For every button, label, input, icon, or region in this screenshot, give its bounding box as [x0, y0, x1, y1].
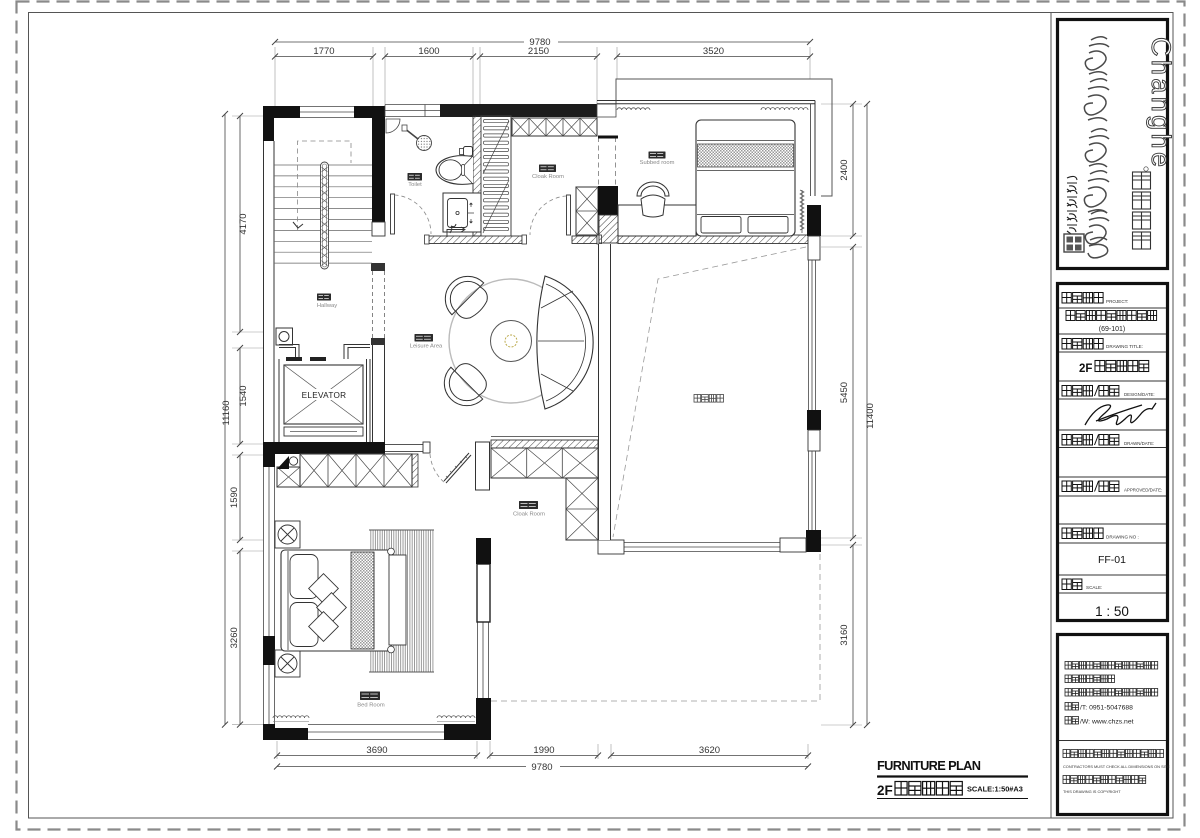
- svg-text:/W: www.chzs.net: /W: www.chzs.net: [1080, 719, 1134, 726]
- svg-text:1990: 1990: [533, 745, 554, 756]
- svg-text:1600: 1600: [418, 46, 439, 57]
- svg-text:SCALE:1:50#A3: SCALE:1:50#A3: [967, 785, 1023, 794]
- svg-text:2400: 2400: [839, 159, 850, 180]
- svg-text:DRAWING TITLE:: DRAWING TITLE:: [1106, 344, 1143, 349]
- svg-text:(69-101): (69-101): [1099, 326, 1125, 333]
- svg-text:DRAWING NO :: DRAWING NO :: [1106, 535, 1139, 540]
- svg-text:DESIGN/DATE:: DESIGN/DATE:: [1124, 392, 1155, 397]
- svg-text:PROJECT:: PROJECT:: [1106, 299, 1128, 304]
- svg-text:FF-01: FF-01: [1098, 554, 1126, 566]
- svg-text:2F: 2F: [877, 783, 893, 798]
- svg-text:3690: 3690: [366, 745, 387, 756]
- svg-text:Cloak Room: Cloak Room: [532, 174, 564, 180]
- svg-text:Bed Room: Bed Room: [357, 703, 385, 709]
- svg-text:1 : 50: 1 : 50: [1095, 604, 1129, 619]
- svg-text:Cloak Room: Cloak Room: [513, 512, 545, 518]
- svg-text:APPROVED/DATE:: APPROVED/DATE:: [1124, 488, 1162, 493]
- svg-text:3160: 3160: [839, 624, 850, 645]
- svg-text:CONTRACTORS MUST CHECK ALL DIM: CONTRACTORS MUST CHECK ALL DIMENSIONS ON…: [1063, 764, 1170, 769]
- svg-text:2F: 2F: [1079, 363, 1092, 375]
- svg-text:THIS DRAWING IS COPYRIGHT: THIS DRAWING IS COPYRIGHT: [1063, 789, 1121, 794]
- svg-text:1590: 1590: [229, 487, 240, 508]
- svg-text:5450: 5450: [839, 382, 850, 403]
- svg-text:11160: 11160: [221, 400, 232, 425]
- svg-text:/T: 0951-5047688: /T: 0951-5047688: [1080, 705, 1133, 712]
- svg-text:9780: 9780: [531, 762, 552, 773]
- svg-text:Hallway: Hallway: [317, 303, 337, 309]
- svg-text:11400: 11400: [865, 403, 876, 429]
- svg-text:3260: 3260: [229, 627, 240, 648]
- svg-text:FURNITURE PLAN: FURNITURE PLAN: [877, 758, 981, 773]
- svg-text:3520: 3520: [703, 46, 724, 57]
- svg-text:ELEVATOR: ELEVATOR: [302, 391, 347, 400]
- svg-text:Subbed room: Subbed room: [640, 160, 675, 166]
- svg-text:SCALE:: SCALE:: [1086, 585, 1102, 590]
- svg-text:4170: 4170: [238, 213, 249, 234]
- svg-text:1540: 1540: [238, 385, 249, 406]
- svg-text:Toilet: Toilet: [408, 182, 422, 188]
- svg-text:3620: 3620: [699, 745, 720, 756]
- svg-text:DRAWN/DATE:: DRAWN/DATE:: [1124, 441, 1154, 446]
- svg-text:Leisure Area: Leisure Area: [410, 344, 443, 350]
- svg-text:1770: 1770: [313, 46, 334, 57]
- svg-text:2150: 2150: [528, 46, 549, 57]
